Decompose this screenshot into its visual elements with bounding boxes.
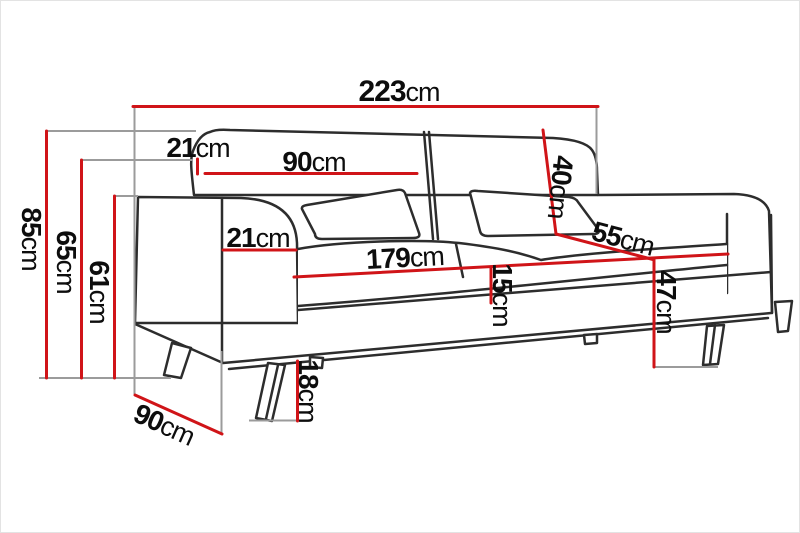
dim-label-back-height: 65cm — [52, 230, 80, 293]
leg-rear-left — [164, 343, 191, 378]
dim-label-arm-height: 61cm — [85, 260, 113, 323]
leg-rear-right — [775, 301, 792, 332]
dim-label-arm-width: 21cm — [226, 224, 289, 252]
dim-label-back-cushion-width: 90cm — [282, 148, 345, 176]
dim-label-leg-height: 18cm — [294, 359, 322, 422]
leg-stub-mid — [584, 334, 597, 344]
pillow-left — [302, 190, 420, 239]
pillow-right — [470, 191, 599, 236]
dim-label-total-width: 223cm — [358, 77, 439, 107]
dim-label-seat-cushion-thickness: 15cm — [488, 263, 516, 326]
dim-label-back-cushion-offset: 21cm — [166, 134, 229, 162]
left-arm — [135, 197, 298, 323]
backrest — [191, 130, 598, 195]
dim-label-seat-height: 47cm — [652, 270, 680, 333]
leg-front-left — [256, 363, 285, 421]
dim-label-total-height: 85cm — [17, 207, 45, 270]
dim-label-seat-width: 179cm — [365, 242, 444, 274]
sofa-dimension-diagram: 223cm 21cm 90cm 85cm 65cm 61cm 21cm 179c… — [0, 0, 800, 533]
dim-label-backrest-cushion-height: 40cm — [543, 154, 577, 220]
